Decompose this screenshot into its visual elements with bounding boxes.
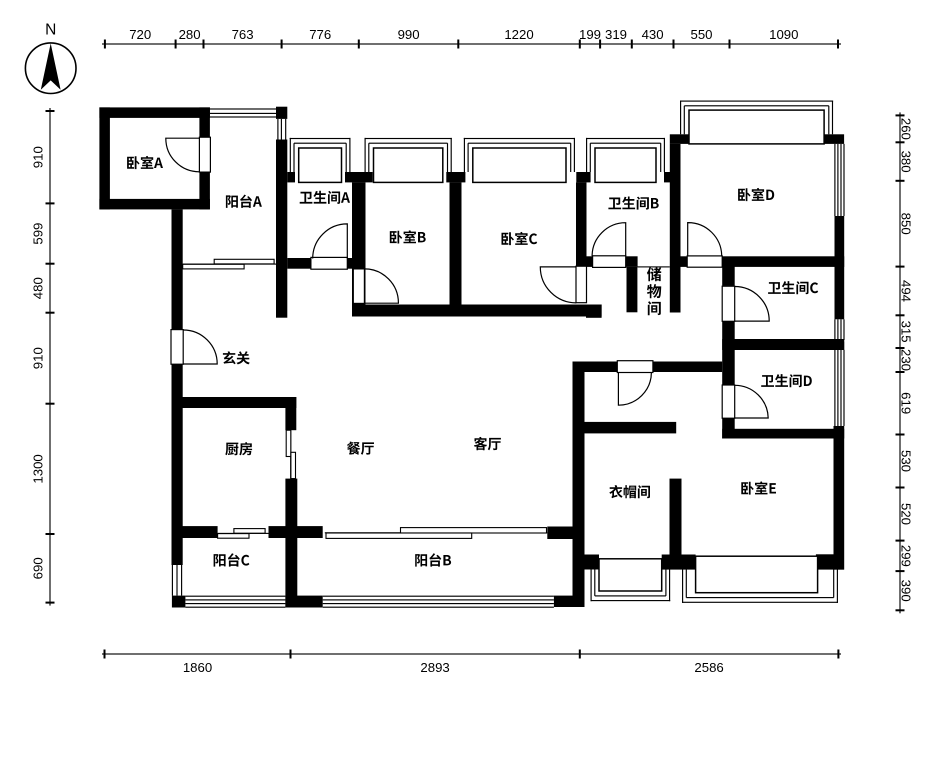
svg-text:599: 599 (31, 223, 46, 245)
svg-text:850: 850 (899, 213, 914, 235)
svg-text:299: 299 (899, 545, 914, 567)
svg-text:1300: 1300 (31, 454, 46, 483)
svg-text:550: 550 (690, 27, 712, 42)
svg-text:199: 199 (579, 27, 601, 42)
svg-text:N: N (45, 22, 56, 39)
svg-text:380: 380 (899, 151, 914, 173)
svg-text:2586: 2586 (694, 660, 723, 675)
svg-text:690: 690 (31, 557, 46, 579)
svg-text:910: 910 (31, 347, 46, 369)
svg-text:1220: 1220 (504, 27, 533, 42)
svg-text:530: 530 (899, 450, 914, 472)
svg-text:910: 910 (31, 146, 46, 168)
svg-text:720: 720 (129, 27, 151, 42)
svg-text:315: 315 (899, 321, 914, 343)
svg-text:494: 494 (899, 280, 914, 302)
svg-text:2893: 2893 (420, 660, 449, 675)
svg-text:619: 619 (899, 392, 914, 414)
svg-text:763: 763 (232, 27, 254, 42)
svg-text:990: 990 (398, 27, 420, 42)
svg-text:480: 480 (31, 277, 46, 299)
svg-text:260: 260 (899, 118, 914, 140)
svg-text:1090: 1090 (769, 27, 798, 42)
svg-text:280: 280 (179, 27, 201, 42)
svg-text:430: 430 (642, 27, 664, 42)
svg-text:390: 390 (899, 580, 914, 602)
svg-text:1860: 1860 (183, 660, 212, 675)
svg-text:230: 230 (899, 349, 914, 371)
svg-text:319: 319 (605, 27, 627, 42)
svg-text:520: 520 (899, 503, 914, 525)
svg-text:776: 776 (309, 27, 331, 42)
